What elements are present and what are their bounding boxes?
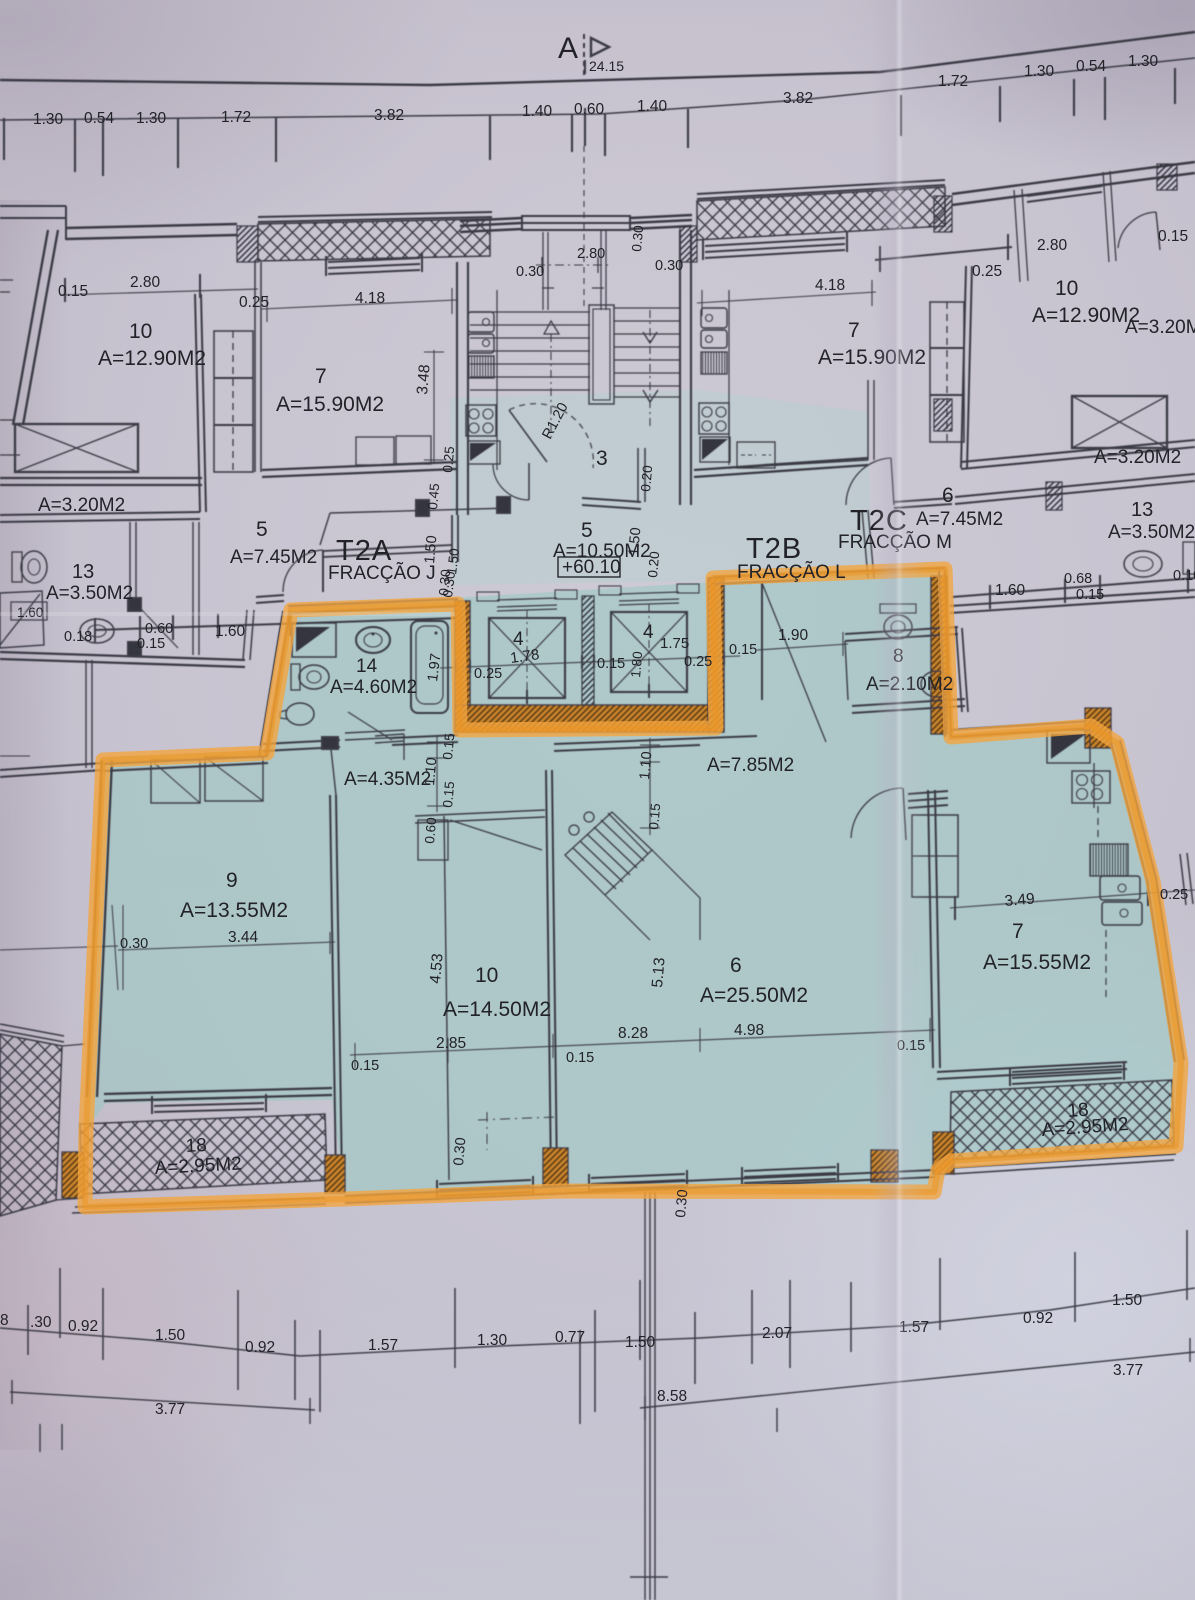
svg-text:0.68: 0.68 <box>1064 571 1092 587</box>
svg-text:FRACÇÃO J: FRACÇÃO J <box>328 562 436 584</box>
svg-text:2.80: 2.80 <box>1037 237 1068 254</box>
svg-text:A=3.50M2: A=3.50M2 <box>46 583 133 604</box>
svg-text:0.25: 0.25 <box>239 294 269 311</box>
svg-text:1.30: 1.30 <box>136 110 167 127</box>
svg-text:10: 10 <box>475 964 498 987</box>
svg-text:8.58: 8.58 <box>657 1388 687 1405</box>
svg-text:4.18: 4.18 <box>355 290 385 307</box>
svg-text:1.72: 1.72 <box>938 73 968 90</box>
svg-text:A=25.50M2: A=25.50M2 <box>700 984 808 1007</box>
svg-text:0.15: 0.15 <box>137 636 165 652</box>
svg-text:1.30: 1.30 <box>1128 53 1159 70</box>
svg-text:4: 4 <box>643 622 654 643</box>
svg-text:10: 10 <box>1055 277 1078 300</box>
svg-text:A=4.35M2: A=4.35M2 <box>344 769 431 790</box>
svg-text:0.92: 0.92 <box>1023 1310 1053 1327</box>
svg-text:0.92: 0.92 <box>68 1318 98 1335</box>
svg-text:2.80: 2.80 <box>130 274 161 291</box>
svg-text:0.30: 0.30 <box>516 264 544 280</box>
svg-text:0.20: 0.20 <box>638 465 655 492</box>
svg-text:18: 18 <box>185 1135 207 1157</box>
svg-text:2.07: 2.07 <box>762 1325 792 1342</box>
svg-text:0.54: 0.54 <box>84 110 115 127</box>
svg-text:A=7.45M2: A=7.45M2 <box>916 509 1003 530</box>
svg-text:1.30: 1.30 <box>33 111 64 128</box>
svg-text:0.77: 0.77 <box>555 1329 585 1346</box>
svg-text:1.80: 1.80 <box>628 651 645 678</box>
svg-text:0.60: 0.60 <box>574 101 605 118</box>
svg-text:T2B: T2B <box>746 533 802 565</box>
svg-text:7: 7 <box>848 319 860 342</box>
svg-text:4.98: 4.98 <box>734 1022 764 1039</box>
svg-text:6: 6 <box>730 954 742 977</box>
svg-text:1.40: 1.40 <box>522 103 553 120</box>
svg-text:9: 9 <box>226 869 238 892</box>
svg-text:A=3.50M2: A=3.50M2 <box>1108 522 1195 543</box>
svg-text:3.44: 3.44 <box>228 929 259 946</box>
svg-text:A=7.85M2: A=7.85M2 <box>707 755 794 776</box>
svg-text:0.20: 0.20 <box>645 551 662 578</box>
svg-text:1.60: 1.60 <box>215 623 246 640</box>
svg-text:A=15.90M2: A=15.90M2 <box>276 393 384 416</box>
svg-text:1.50: 1.50 <box>625 1334 656 1351</box>
svg-text:4.18: 4.18 <box>815 277 845 294</box>
svg-text:0.15: 0.15 <box>440 733 457 760</box>
svg-text:1.30: 1.30 <box>477 1332 508 1349</box>
svg-text:1.97: 1.97 <box>425 653 444 683</box>
svg-text:0.25: 0.25 <box>1160 887 1188 903</box>
svg-text:2.85: 2.85 <box>436 1035 466 1052</box>
svg-text:0.30: 0.30 <box>120 936 148 952</box>
svg-text:A=12.90M2: A=12.90M2 <box>1032 304 1140 327</box>
svg-text:1.30: 1.30 <box>1024 63 1055 80</box>
svg-text:0.54: 0.54 <box>1076 58 1107 75</box>
svg-text:+60.10: +60.10 <box>562 557 621 578</box>
svg-text:0.15: 0.15 <box>646 803 663 830</box>
svg-text:3.77: 3.77 <box>155 1401 185 1418</box>
svg-text:A=3.20M2: A=3.20M2 <box>1094 447 1181 468</box>
svg-text:0.25: 0.25 <box>972 263 1002 280</box>
svg-text:1.50: 1.50 <box>626 527 644 557</box>
svg-text:A=3.20M2: A=3.20M2 <box>38 495 125 516</box>
svg-text:5: 5 <box>256 518 268 541</box>
svg-text:A=14.50M2: A=14.50M2 <box>443 998 551 1021</box>
svg-text:5.13: 5.13 <box>649 957 669 989</box>
svg-text:1.10: 1.10 <box>637 751 655 781</box>
svg-text:4.53: 4.53 <box>427 953 447 985</box>
svg-text:1.50: 1.50 <box>1112 1292 1143 1309</box>
svg-text:0.15: 0.15 <box>729 642 757 658</box>
svg-text:1.57: 1.57 <box>368 1337 398 1354</box>
svg-text:0.15: 0.15 <box>1158 228 1188 245</box>
svg-text:4: 4 <box>513 629 524 650</box>
svg-text:3.48: 3.48 <box>414 364 434 396</box>
svg-text:3.82: 3.82 <box>783 90 813 107</box>
svg-text:1.75: 1.75 <box>660 635 689 652</box>
svg-text:8: 8 <box>0 1312 9 1329</box>
svg-text:3: 3 <box>596 447 608 470</box>
svg-text:14: 14 <box>356 656 378 677</box>
svg-text:3.49: 3.49 <box>1004 890 1036 910</box>
svg-text:0.15: 0.15 <box>566 1050 594 1066</box>
svg-text:A=3.20M2: A=3.20M2 <box>1125 317 1195 338</box>
svg-text:1.50: 1.50 <box>444 547 462 575</box>
svg-text:7: 7 <box>1012 920 1024 943</box>
svg-text:0.15: 0.15 <box>351 1058 379 1074</box>
svg-text:FRACÇÃO L: FRACÇÃO L <box>737 561 846 583</box>
svg-text:1.90: 1.90 <box>778 627 809 644</box>
svg-text:A=12.90M2: A=12.90M2 <box>98 347 206 370</box>
svg-text:A=7.45M2: A=7.45M2 <box>230 547 317 568</box>
svg-text:10: 10 <box>129 320 152 343</box>
svg-text:.30: .30 <box>30 1314 52 1331</box>
svg-text:0.15: 0.15 <box>597 656 625 672</box>
svg-text:1.72: 1.72 <box>221 109 251 126</box>
svg-text:13: 13 <box>72 561 94 583</box>
svg-text:0.45: 0.45 <box>425 483 442 510</box>
svg-text:A=4.60M2: A=4.60M2 <box>330 677 417 698</box>
svg-text:8.28: 8.28 <box>618 1025 648 1042</box>
svg-text:0.25: 0.25 <box>440 446 457 473</box>
svg-text:0.30: 0.30 <box>629 225 646 252</box>
svg-text:0.18: 0.18 <box>64 629 92 645</box>
svg-text:0.15: 0.15 <box>1076 587 1104 603</box>
svg-text:1.10: 1.10 <box>422 757 440 787</box>
svg-text:A=15.55M2: A=15.55M2 <box>983 951 1091 974</box>
svg-text:1.50: 1.50 <box>155 1327 186 1344</box>
svg-text:0.25: 0.25 <box>474 666 502 682</box>
svg-text:0.10: 0.10 <box>1173 568 1195 584</box>
svg-text:0.60: 0.60 <box>145 621 173 637</box>
svg-text:0.60: 0.60 <box>422 817 439 844</box>
svg-text:A=13.55M2: A=13.55M2 <box>180 899 288 922</box>
svg-text:1.40: 1.40 <box>637 98 668 115</box>
svg-text:0.25: 0.25 <box>684 654 712 670</box>
svg-text:0.30: 0.30 <box>655 258 683 274</box>
svg-text:6: 6 <box>942 484 954 507</box>
svg-text:3.77: 3.77 <box>1113 1362 1143 1379</box>
svg-text:0.92: 0.92 <box>245 1339 275 1356</box>
svg-text:2.80: 2.80 <box>577 246 605 262</box>
svg-text:5: 5 <box>581 519 593 542</box>
svg-text:1.60: 1.60 <box>995 582 1026 599</box>
svg-text:0.15: 0.15 <box>440 781 457 808</box>
svg-text:0.30: 0.30 <box>673 1189 691 1219</box>
svg-text:7: 7 <box>315 365 327 388</box>
svg-text:3.82: 3.82 <box>374 107 404 124</box>
svg-text:A: A <box>558 32 578 65</box>
svg-text:24.15: 24.15 <box>589 58 624 74</box>
svg-text:0.15: 0.15 <box>58 283 88 300</box>
svg-text:13: 13 <box>1131 499 1153 521</box>
svg-text:0.30: 0.30 <box>451 1137 469 1167</box>
svg-text:1.50: 1.50 <box>422 535 440 565</box>
